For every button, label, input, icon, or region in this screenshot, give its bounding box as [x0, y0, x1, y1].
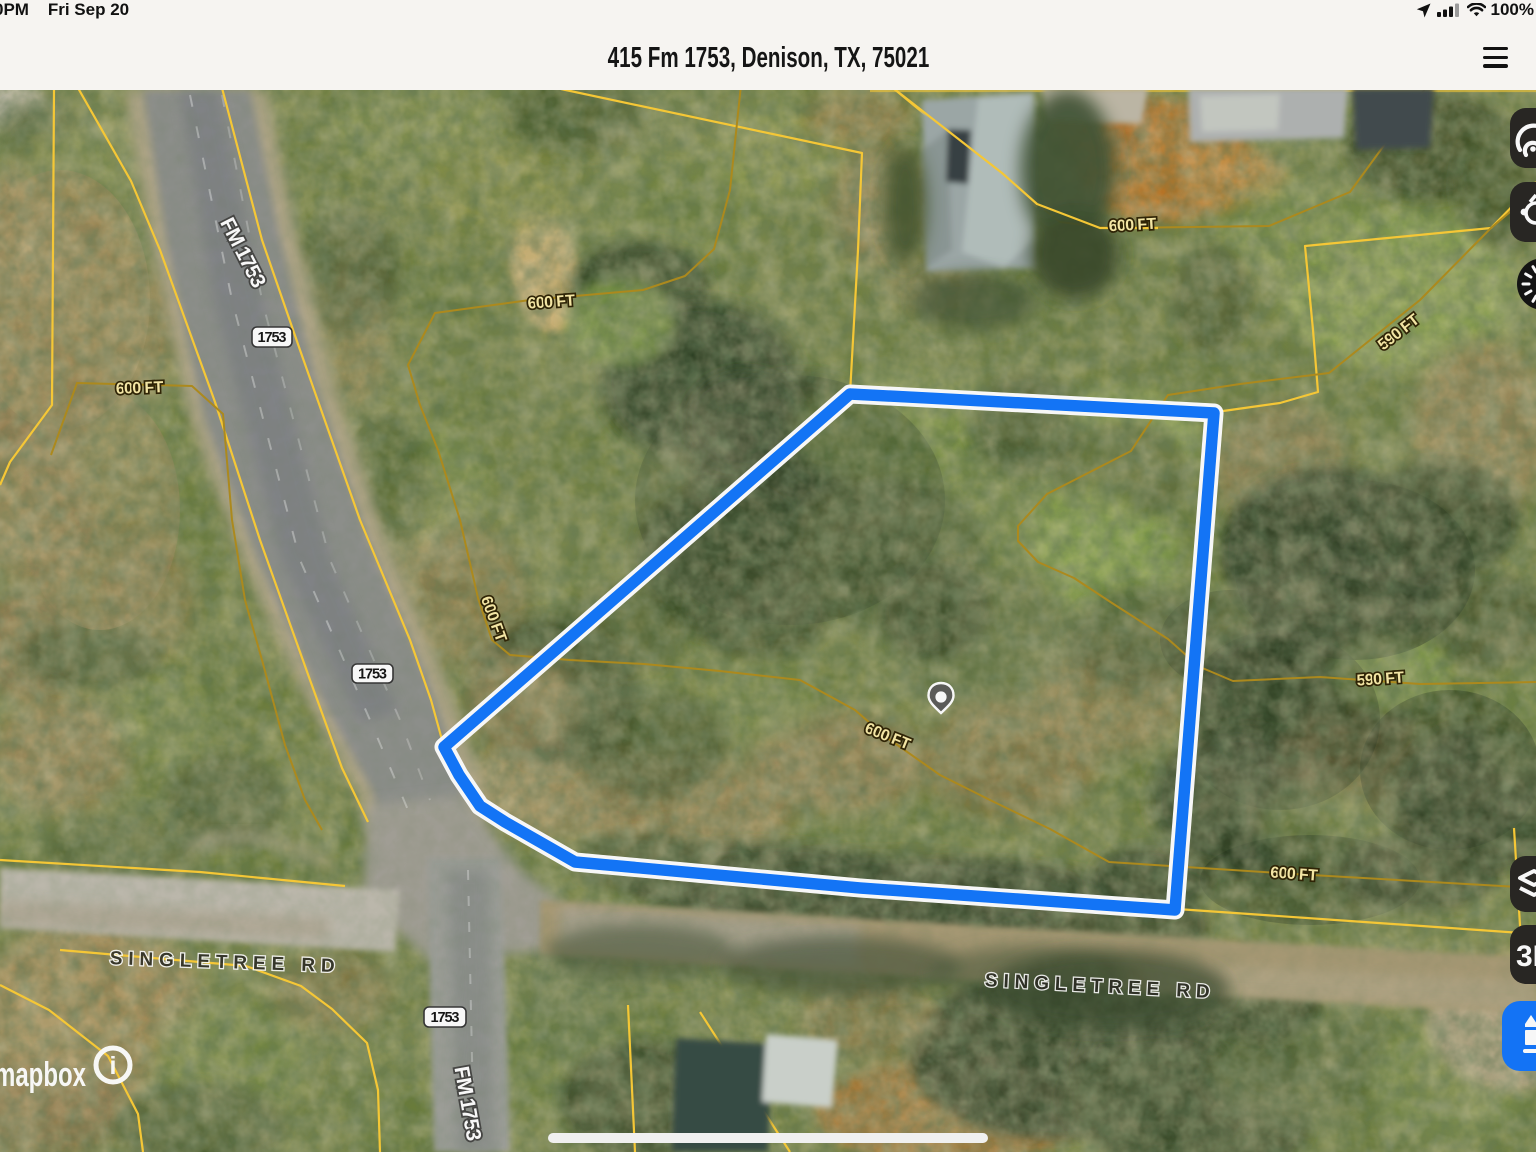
svg-text:1753: 1753: [358, 667, 387, 683]
svg-text:i: i: [110, 1052, 117, 1080]
svg-text:600 FT: 600 FT: [1108, 216, 1157, 235]
svg-text:1753: 1753: [258, 330, 287, 346]
svg-text:1753: 1753: [431, 1010, 460, 1026]
svg-text:600 FT: 600 FT: [527, 292, 576, 312]
svg-text:600 FT: 600 FT: [116, 379, 165, 398]
svg-text:600 FT: 600 FT: [1270, 864, 1319, 884]
svg-text:mapbox: mapbox: [0, 1056, 86, 1094]
svg-text:3D: 3D: [1516, 940, 1536, 973]
svg-text:590 FT: 590 FT: [1356, 669, 1405, 689]
